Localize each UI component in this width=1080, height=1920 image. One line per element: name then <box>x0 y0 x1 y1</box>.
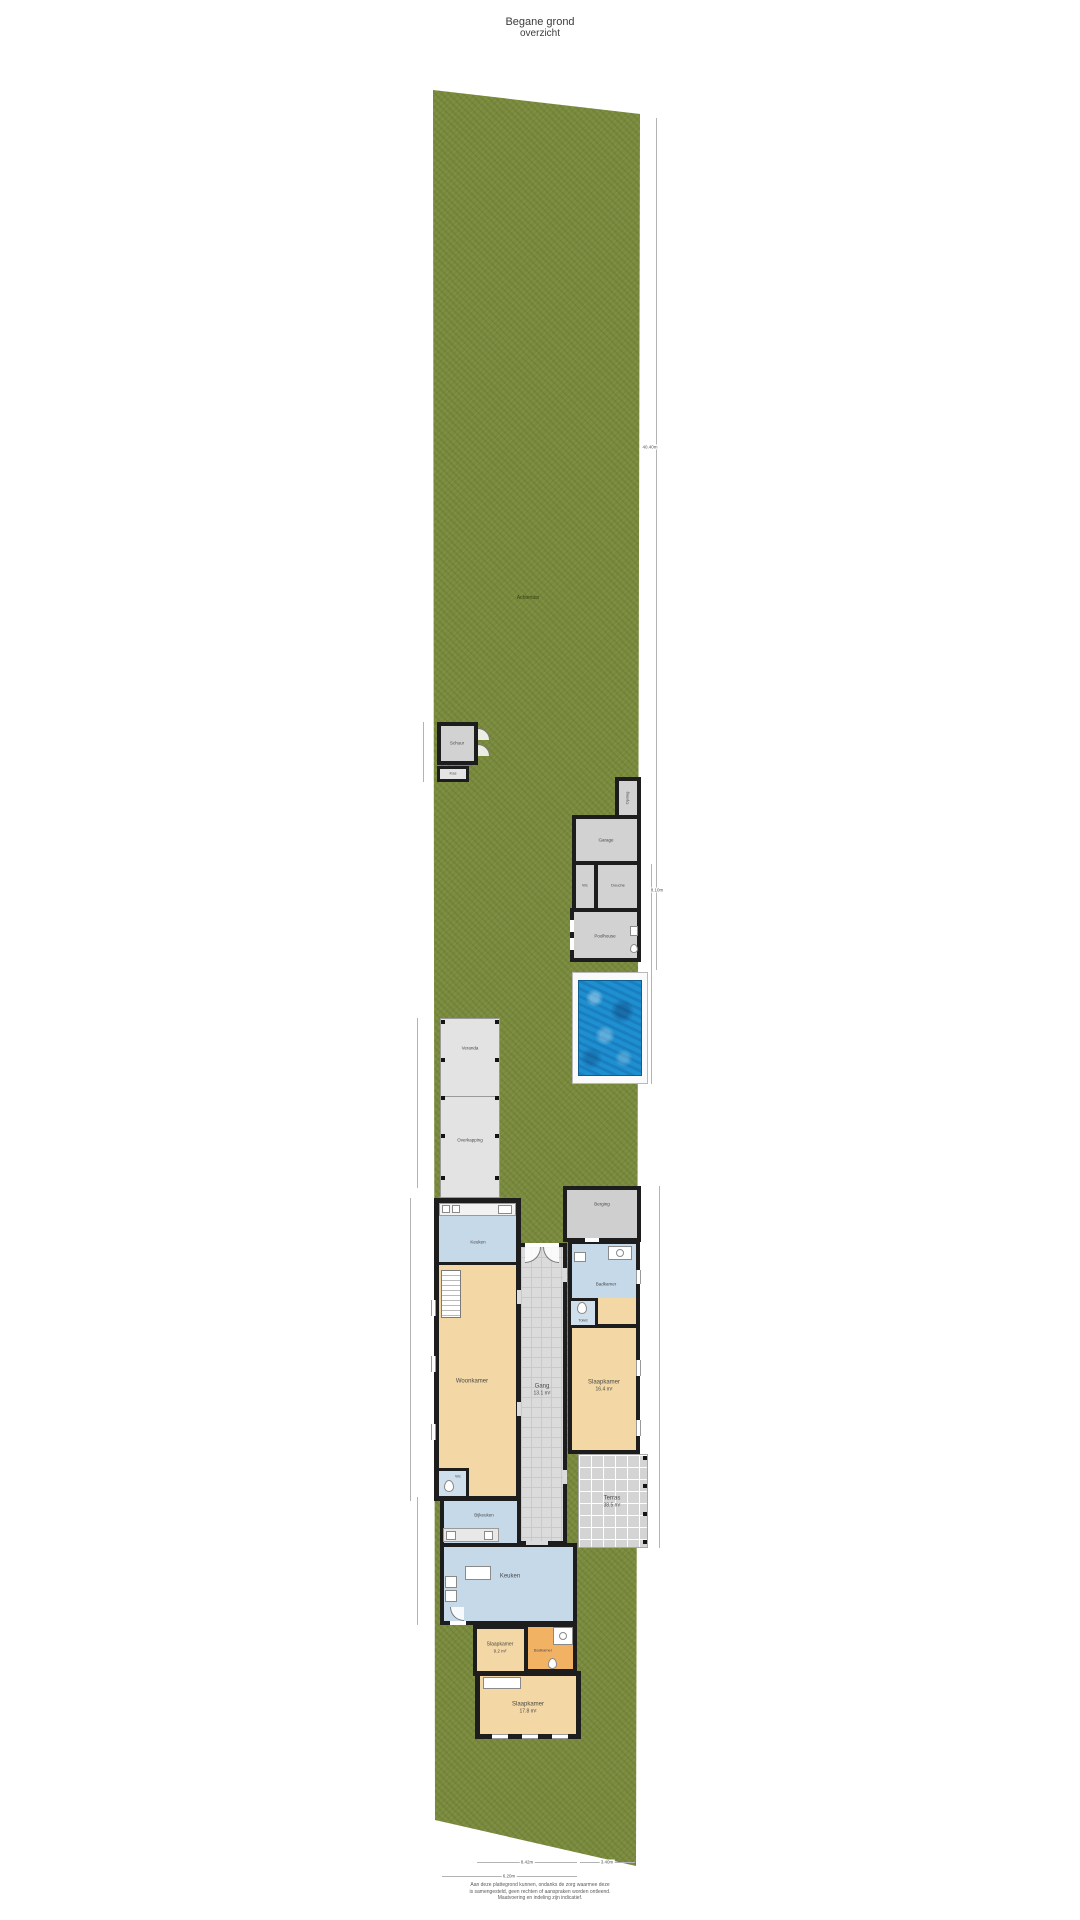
door-gap <box>526 1541 548 1545</box>
window <box>636 1360 641 1376</box>
terras-post-icon <box>643 1512 647 1516</box>
poolhouse-door-gap-1 <box>570 920 574 932</box>
window <box>431 1356 436 1372</box>
garden-label: Achtertuin <box>517 595 540 601</box>
terras-post-icon <box>643 1484 647 1488</box>
sink-icon <box>498 1205 512 1214</box>
slaapkamer-rechts-area: 16.4 m² <box>588 1387 620 1393</box>
veranda-post-icon <box>495 1176 499 1180</box>
shower-icon <box>553 1627 573 1645</box>
title-line1: Begane grond <box>0 16 1080 28</box>
room-berging <box>563 1186 641 1242</box>
sink-icon <box>484 1531 493 1540</box>
veranda-post-icon <box>495 1134 499 1138</box>
page-title: Begane grond overzicht <box>0 16 1080 39</box>
slaapkamer-1-area: 9.2 m² <box>487 1649 514 1654</box>
veranda-post-icon <box>441 1134 445 1138</box>
dimension-label-right-total: 40.40m <box>641 445 658 450</box>
dimension-line-right-wing <box>659 1186 660 1548</box>
toilet-icon <box>577 1302 587 1314</box>
wall-divider <box>439 1262 516 1265</box>
terras-label: Terras <box>604 1495 621 1501</box>
door-gap <box>517 1290 521 1304</box>
veranda-post-icon <box>441 1176 445 1180</box>
toilet-icon <box>548 1658 557 1669</box>
dimension-label-bottom-terras: 3.40m <box>600 1860 615 1865</box>
gang-area: 13.1 m² <box>534 1391 551 1397</box>
dimension-line-right-pool <box>651 864 652 1084</box>
poolhouse-toilet-icon <box>630 944 638 953</box>
appliance-icon <box>446 1531 456 1540</box>
slaapkamer-1-label: Slaapkamer <box>487 1642 514 1648</box>
stairs-icon <box>441 1270 461 1318</box>
door-gap <box>563 1268 567 1282</box>
appliance-icon <box>452 1205 460 1213</box>
keuken-label: Keuken <box>500 1573 520 1580</box>
sink-icon <box>574 1252 586 1262</box>
berging-label: Berging <box>594 1201 610 1206</box>
badkamer-rechts-label: Badkamer <box>596 1281 617 1286</box>
dimension-label-bottom-house: 8.42m <box>520 1860 535 1865</box>
window <box>431 1424 436 1440</box>
terras-area: 38.5 m² <box>604 1503 621 1509</box>
veranda-divider <box>440 1096 500 1097</box>
poolhouse-label: Poolhouse <box>594 933 615 938</box>
door-gap <box>585 1238 599 1242</box>
veranda-post-icon <box>441 1020 445 1024</box>
veranda-post-icon <box>441 1058 445 1062</box>
shower-icon <box>608 1246 632 1260</box>
slaapkamer-2-area: 17.8 m² <box>512 1709 544 1715</box>
window <box>522 1734 538 1739</box>
dimension-label-right-pool: 8.10m <box>650 888 665 893</box>
dimension-line-right-total <box>656 118 657 970</box>
kitchen-island <box>465 1566 491 1580</box>
woonkamer-label: Woonkamer <box>456 1378 488 1385</box>
slaapkamer-2-label: Slaapkamer <box>512 1701 544 1707</box>
schuur-label: Schuur <box>450 740 464 745</box>
dimension-label-bottom-total: 6.20m <box>502 1874 517 1879</box>
swimming-pool <box>578 980 642 1076</box>
badkamer-label: Badkamer <box>534 1649 552 1654</box>
door-gap <box>450 1621 466 1625</box>
toilet-icon <box>444 1480 454 1492</box>
kas-label: Kas <box>450 772 457 777</box>
opslag-label: Opslag <box>626 792 631 805</box>
veranda-post-icon <box>441 1096 445 1100</box>
room-wc-achter <box>439 1468 469 1496</box>
dimension-line-house-left <box>410 1198 411 1501</box>
terras-post-icon <box>643 1456 647 1460</box>
dimension-line-veranda <box>417 1018 418 1188</box>
footer-line3: Maatvoering en indeling zijn indicatief. <box>0 1895 1080 1902</box>
veranda-post-icon <box>495 1020 499 1024</box>
wc-achter-label: Wc <box>455 1475 461 1480</box>
title-line2: overzicht <box>0 28 1080 39</box>
dimension-line-shed <box>423 722 424 782</box>
window <box>492 1734 508 1739</box>
window <box>636 1420 641 1436</box>
window <box>636 1270 641 1284</box>
appliance-icon <box>442 1205 450 1213</box>
dimension-line-kitchen-left <box>417 1497 418 1625</box>
appliance-icon <box>445 1576 457 1588</box>
door-gap <box>517 1402 521 1416</box>
keuken-achter-label: Keuken <box>470 1239 485 1244</box>
window <box>431 1300 436 1316</box>
appliance-icon <box>445 1590 457 1602</box>
poolhouse-fixture-icon <box>630 926 638 936</box>
garage-label: Garage <box>598 837 613 842</box>
veranda-post-icon <box>495 1096 499 1100</box>
veranda-label: Veranda <box>462 1045 479 1050</box>
overkapping-label: Overkapping <box>457 1137 483 1142</box>
terras-post-icon <box>643 1540 647 1544</box>
poolhouse-door-gap-2 <box>570 938 574 950</box>
gang-label: Gang <box>535 1383 550 1389</box>
door-gap <box>563 1470 567 1484</box>
wardrobe-icon <box>483 1677 521 1689</box>
slaapkamer-rechts-label: Slaapkamer <box>588 1379 620 1385</box>
buiten-wc-label: Wc <box>582 884 588 889</box>
toilet-label: Toilet <box>578 1319 587 1324</box>
window <box>552 1734 568 1739</box>
bijkeuken-label: Bijkeuken <box>474 1512 494 1517</box>
veranda-post-icon <box>495 1058 499 1062</box>
footer-disclaimer: Aan deze plattegrond kunnen, ondanks de … <box>0 1882 1080 1902</box>
douche-label: Douche <box>611 884 625 889</box>
floorplan-page: Begane grond overzicht Achtertuin 40.40m… <box>0 0 1080 1920</box>
